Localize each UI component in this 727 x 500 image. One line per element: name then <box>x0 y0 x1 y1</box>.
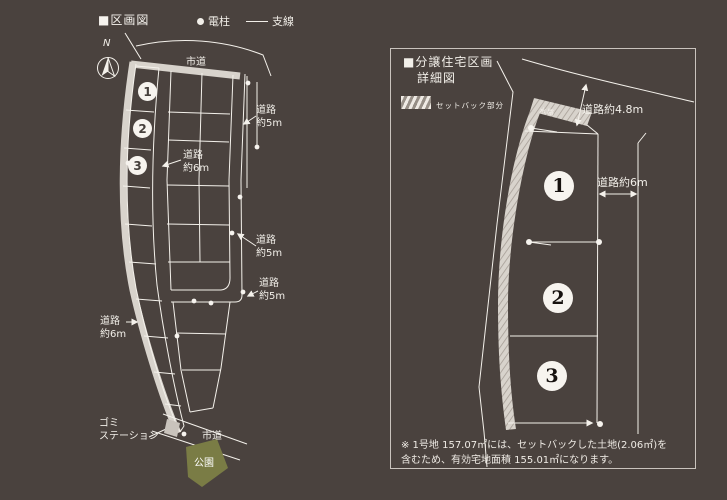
overview-title: ■区画図 <box>98 14 149 27</box>
detail-title-line2: 詳細図 <box>417 72 456 85</box>
road-6m-label: 道路約6m <box>597 176 648 189</box>
overview-legend: 電柱支線 <box>197 13 294 29</box>
compass-n-label: N <box>103 37 110 50</box>
road-6m-left-label: 道路約6m <box>100 315 126 341</box>
detail-note-line1: ※ 1号地 157.07㎡には、セットバックした土地(2.06㎡)を <box>401 436 667 451</box>
park-label: 公園 <box>194 457 214 470</box>
overview-road-bands <box>123 62 240 433</box>
detail-note-line2: 含むため、有効宅地面積 155.01㎡になります。 <box>401 451 618 466</box>
road-5m-label-b: 道路約5m <box>256 234 282 260</box>
wire-icon <box>246 21 268 22</box>
city-road-bottom-label: 市道 <box>202 430 222 443</box>
road-6m-center-label: 道路約6m <box>183 149 209 175</box>
setback-legend-swatch <box>401 96 431 109</box>
lot-3-marker: 3 <box>128 156 147 175</box>
detail-lot-1-marker: 1 <box>544 171 574 201</box>
detail-parcel-lines <box>508 125 646 434</box>
detail-map-box: ■分譲住宅区画 詳細図 セットバック部分 水路 道路約4.8m 道路約6m 1 … <box>390 48 696 469</box>
road-5m-label-a: 道路約5m <box>256 104 282 130</box>
city-road-top-label: 市道 <box>186 56 206 69</box>
detail-title-line1: ■分譲住宅区画 <box>403 56 493 69</box>
road-4-8m-label: 道路約4.8m <box>582 103 643 116</box>
site-plan-page: ■区画図 電柱支線 N 市道 1 2 3 道路約6m 道路約5m 道路約5m 道… <box>0 0 727 500</box>
detail-lot-2-marker: 2 <box>543 283 573 313</box>
wire-legend-label: 支線 <box>272 13 294 29</box>
garbage-station-label: ゴミステーション <box>99 417 159 443</box>
compass-icon <box>98 58 119 79</box>
road-5m-label-c: 道路約5m <box>259 277 285 303</box>
lot-2-marker: 2 <box>133 119 152 138</box>
detail-lot-3-marker: 3 <box>537 361 567 391</box>
pole-icon <box>197 18 204 25</box>
waterway-label: 水路 <box>538 105 556 121</box>
lot-1-marker: 1 <box>138 82 157 101</box>
pole-legend-label: 電柱 <box>208 13 230 29</box>
garbage-station-pad <box>164 419 180 437</box>
overview-map-drawing <box>0 0 380 500</box>
setback-legend-label: セットバック部分 <box>436 99 504 112</box>
